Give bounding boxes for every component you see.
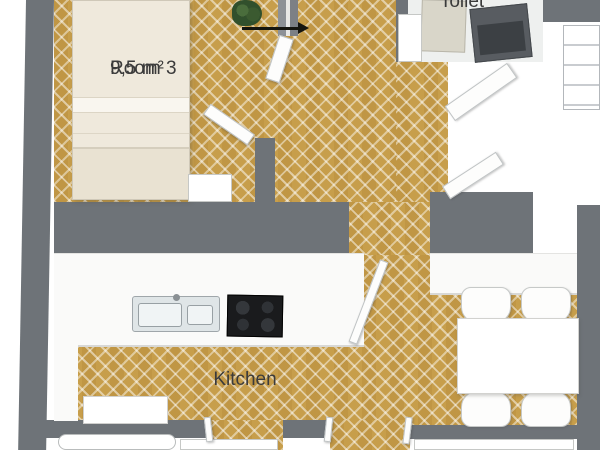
wall-top-right — [543, 0, 600, 22]
bed-seam — [73, 133, 189, 134]
toilet-label: Toilet — [412, 0, 512, 15]
wall-mid-right — [430, 192, 533, 255]
wall-outer-left — [18, 0, 54, 450]
wall-bottom-mid — [283, 420, 330, 438]
kitchen-label: Kitchen — [185, 367, 305, 393]
bottom-room-furniture — [180, 439, 278, 450]
entrance-arrow-icon — [242, 22, 312, 35]
washing-machine-drum — [477, 21, 526, 56]
bed — [72, 0, 190, 200]
bottom-room-furniture — [414, 439, 574, 450]
dresser — [188, 174, 232, 202]
arrow-line — [242, 27, 300, 30]
arrow-head — [298, 22, 309, 34]
wall-room3-corner — [255, 138, 275, 202]
sink-basin-right — [187, 305, 213, 325]
bed-foot-section — [73, 147, 189, 199]
wall-mid-left — [54, 202, 349, 254]
floor-doorway-bottom-mid — [330, 420, 410, 450]
room3-area: 9,5 m² — [110, 56, 164, 82]
sink-faucet — [173, 294, 180, 301]
wardrobe — [563, 25, 600, 110]
sink-basin-left — [138, 303, 182, 327]
kitchen-window-sill — [83, 396, 168, 424]
bottom-room-furniture — [58, 434, 176, 450]
floorplan: Room 3 9,5 m² Toilet Kitchen — [0, 0, 600, 450]
kitchen-cabinet-strip — [54, 253, 78, 421]
toilet-open-door — [445, 63, 518, 121]
toilet-fixture — [398, 14, 422, 62]
floor-hall-passage — [349, 202, 430, 255]
kitchen-sink — [132, 296, 220, 332]
stove — [227, 295, 284, 338]
dining-chair — [521, 391, 571, 427]
floor-hallway-right — [396, 60, 448, 202]
wall-bottom-right — [410, 425, 577, 439]
dining-chair — [461, 391, 511, 427]
bed-blanket-fold — [73, 97, 189, 113]
dining-table — [457, 318, 579, 394]
wall-outer-right — [577, 205, 600, 450]
